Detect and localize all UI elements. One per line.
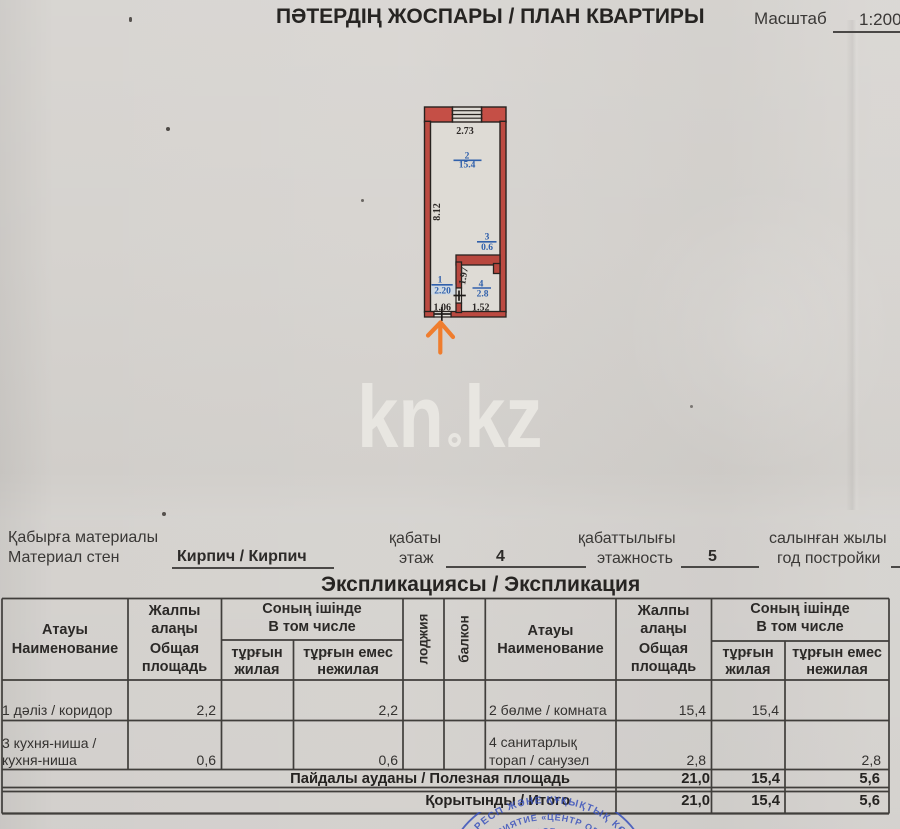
svg-text:2.20: 2.20 <box>434 287 451 297</box>
svg-text:2.73: 2.73 <box>456 126 474 137</box>
svg-text:15.4: 15.4 <box>459 161 476 171</box>
svg-text:0.6: 0.6 <box>481 243 493 253</box>
svg-text:1.06: 1.06 <box>434 303 452 314</box>
svg-text:1.52: 1.52 <box>472 303 490 314</box>
svg-text:8.12: 8.12 <box>432 203 443 221</box>
svg-text:2.8: 2.8 <box>477 290 489 300</box>
